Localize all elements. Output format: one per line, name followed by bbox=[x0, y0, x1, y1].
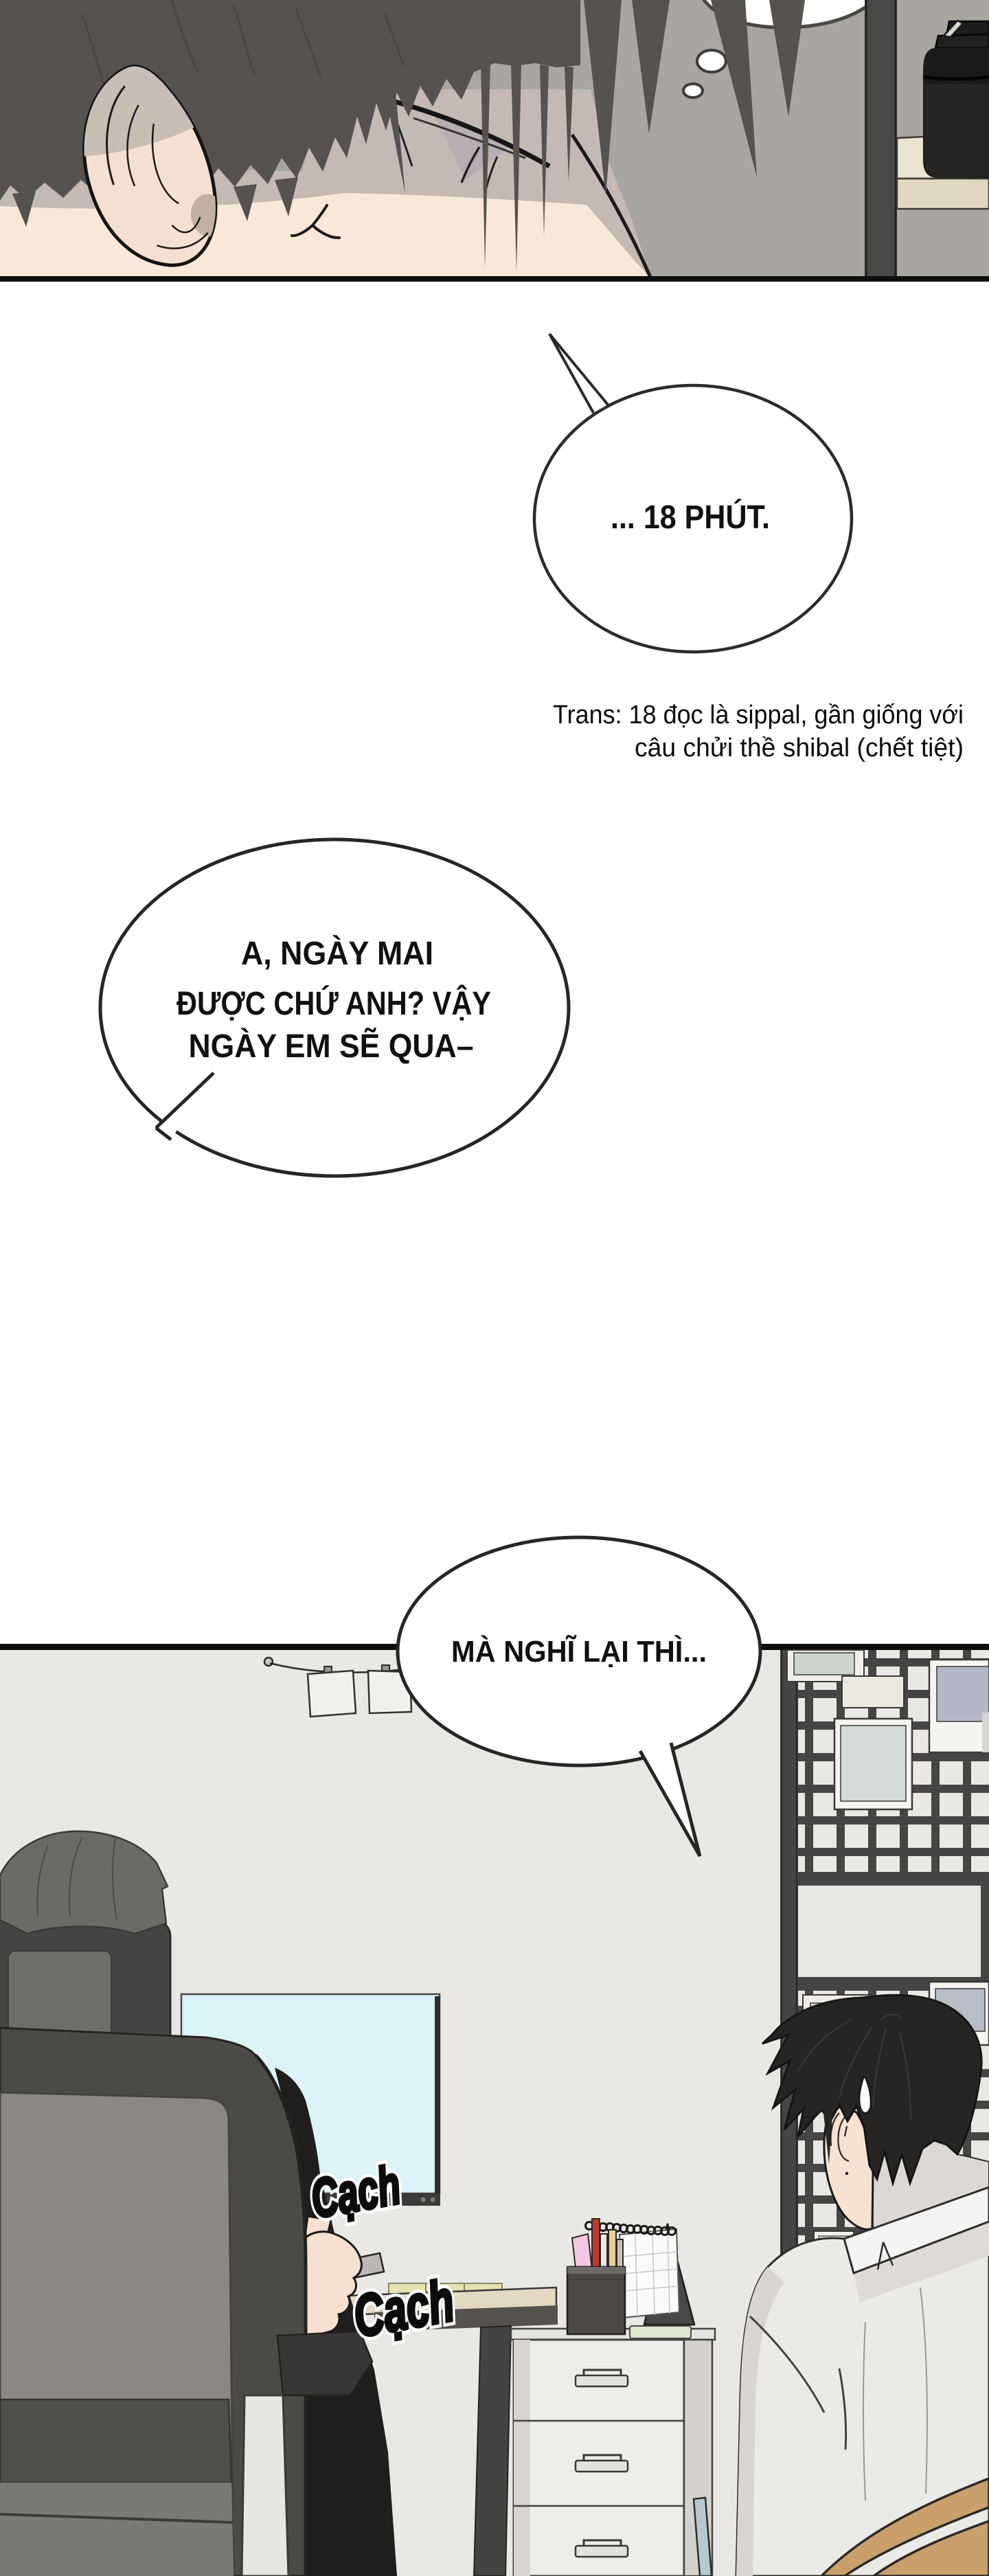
svg-text:câu chửi thề shibal (chết tiệt: câu chửi thề shibal (chết tiệt) bbox=[635, 734, 964, 762]
svg-text:Trans: 18 đọc là sippal, gần g: Trans: 18 đọc là sippal, gần giống với bbox=[553, 701, 964, 730]
svg-text:ĐƯỢC CHỨ ANH? VẬY: ĐƯỢC CHỨ ANH? VẬY bbox=[177, 984, 491, 1022]
svg-text:MÀ NGHĨ LẠI THÌ...: MÀ NGHĨ LẠI THÌ... bbox=[451, 1634, 707, 1669]
svg-text:... 18 PHÚT.: ... 18 PHÚT. bbox=[611, 498, 770, 536]
svg-text:A, NGÀY MAI: A, NGÀY MAI bbox=[241, 935, 433, 972]
svg-text:NGÀY EM SẼ QUA–: NGÀY EM SẼ QUA– bbox=[189, 1028, 474, 1065]
